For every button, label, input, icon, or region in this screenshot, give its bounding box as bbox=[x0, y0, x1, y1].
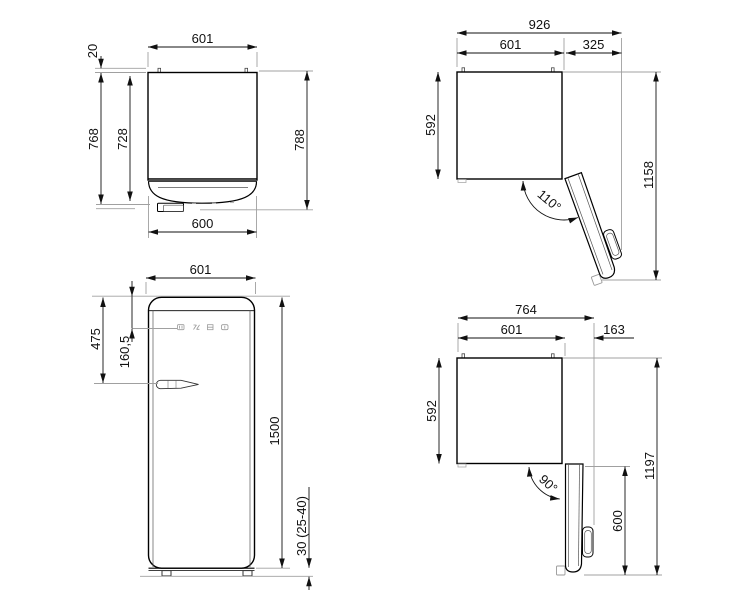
dim-width-601-front: 601 bbox=[146, 262, 256, 278]
dim-label: 926 bbox=[529, 17, 551, 32]
dim-label: 600 bbox=[192, 216, 214, 231]
open-door-110 bbox=[556, 169, 628, 285]
dim-depth-592: 592 bbox=[423, 72, 438, 179]
dim-label: 600 bbox=[610, 510, 625, 532]
dim-angle-90: 90° bbox=[529, 467, 561, 499]
dim-rear-spacer-20: 20 bbox=[85, 44, 101, 69]
door-slab bbox=[566, 464, 584, 572]
dim-total-width-764: 764 bbox=[458, 302, 594, 318]
dim-label: 764 bbox=[515, 302, 537, 317]
dim-total-depth-1197: 1197 bbox=[642, 358, 657, 575]
dim-label: 788 bbox=[292, 129, 307, 151]
dim-label: 160,5 bbox=[117, 336, 132, 369]
dim-depth-592: 592 bbox=[424, 358, 439, 464]
dim-door-width-600: 600 bbox=[149, 216, 257, 232]
dim-label: 30 (25-40) bbox=[294, 496, 309, 556]
dim-label: 601 bbox=[190, 262, 212, 277]
dim-body-width-601: 601 bbox=[458, 322, 565, 338]
dim-label: 601 bbox=[501, 322, 523, 337]
handle-plan bbox=[158, 203, 184, 211]
dim-label: 1500 bbox=[267, 417, 282, 446]
drawing-canvas: 601 20 768 728 788 600 bbox=[0, 0, 750, 600]
fridge-front-outline bbox=[149, 297, 255, 568]
dim-total-depth-1158: 1158 bbox=[641, 72, 656, 280]
dim-panel-160-5: 160,5 bbox=[117, 281, 132, 368]
dim-depth-728: 728 bbox=[115, 76, 130, 201]
fridge-body-plan bbox=[457, 358, 562, 464]
dim-label: 475 bbox=[88, 328, 103, 350]
dim-width-601: 601 bbox=[148, 31, 257, 47]
dim-label: 728 bbox=[115, 128, 130, 150]
view-plan-open-90: 764 601 163 592 1197 600 90° bbox=[424, 302, 662, 575]
open-door-90 bbox=[557, 464, 594, 575]
foot bbox=[162, 571, 171, 576]
angle-label: 110° bbox=[535, 187, 565, 215]
view-plan-open-110: 926 601 325 592 1158 110° bbox=[423, 17, 661, 286]
angle-label: 90° bbox=[536, 471, 561, 495]
dim-door-projection-325: 325 bbox=[566, 37, 622, 53]
dim-feet-30-25-40: 30 (25-40) bbox=[294, 487, 309, 590]
dim-label: 768 bbox=[86, 128, 101, 150]
dim-label: 601 bbox=[500, 37, 522, 52]
view-plan-closed: 601 20 768 728 788 600 bbox=[85, 31, 313, 238]
dim-total-width-926: 926 bbox=[457, 17, 622, 33]
dim-depth-788: 788 bbox=[292, 71, 307, 210]
dim-label: 20 bbox=[85, 44, 100, 58]
view-front: 601 160,5 475 1500 30 (25-40) bbox=[88, 262, 313, 590]
dim-height-1500: 1500 bbox=[267, 298, 282, 569]
dim-door-projection-163: 163 bbox=[594, 322, 634, 338]
fridge-body-plan bbox=[457, 72, 562, 179]
door-front-curve bbox=[149, 182, 257, 204]
body-corner-tab bbox=[458, 464, 466, 467]
door-hinge-tab bbox=[557, 566, 566, 575]
fridge-body-plan bbox=[148, 73, 257, 181]
dim-label: 592 bbox=[424, 400, 439, 422]
foot bbox=[243, 571, 252, 576]
dim-label: 1197 bbox=[642, 452, 657, 480]
dim-label: 592 bbox=[423, 114, 438, 136]
dim-label: 1158 bbox=[641, 161, 656, 189]
dim-body-width-601: 601 bbox=[457, 37, 564, 53]
dim-label: 601 bbox=[192, 31, 214, 46]
body-corner-tab bbox=[458, 180, 466, 183]
dim-depth-768: 768 bbox=[86, 73, 101, 204]
dim-handle-475: 475 bbox=[88, 298, 103, 384]
dim-door-depth-600: 600 bbox=[610, 467, 625, 576]
dim-label: 325 bbox=[583, 37, 605, 52]
dim-label: 163 bbox=[603, 322, 625, 337]
technical-drawing: 601 20 768 728 788 600 bbox=[0, 0, 750, 600]
door-slab bbox=[565, 173, 618, 280]
